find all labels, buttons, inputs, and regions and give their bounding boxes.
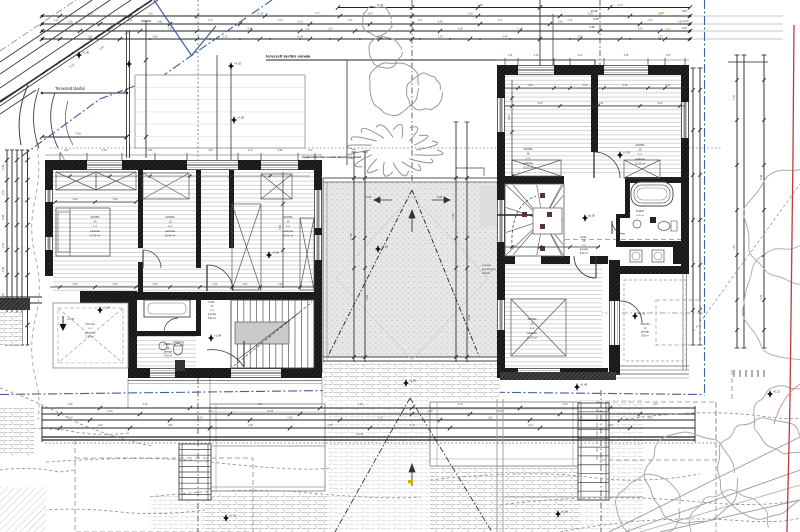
svg-text:TERASZ: TERASZ [640,323,650,326]
svg-text:1,50: 1,50 [557,20,563,24]
svg-text:L-1: L-1 [526,156,530,160]
svg-text:tervezett: tervezett [482,264,491,267]
svg-text:1,93: 1,93 [657,35,663,39]
svg-text:17,50 m²: 17,50 m² [90,233,101,237]
svg-text:9,61 m²: 9,61 m² [580,252,589,255]
svg-text:L-1: L-1 [638,152,642,156]
svg-text:2,10: 2,10 [409,423,415,427]
svg-text:parketta: parketta [523,161,533,165]
svg-text:1,48: 1,48 [67,402,73,406]
svg-text:1,50: 1,50 [666,28,671,31]
svg-text:1,20: 1,20 [527,423,533,427]
svg-text:15,48: 15,48 [267,409,274,413]
svg-text:1,50: 1,50 [1,242,5,248]
svg-text:FÜRDŐ: FÜRDŐ [164,343,173,346]
svg-text:2,10: 2,10 [683,19,689,23]
svg-text:greslap: greslap [164,351,173,354]
svg-text:SZOBA: SZOBA [90,215,99,219]
svg-text:+0,15: +0,15 [773,390,781,394]
svg-text:2,10: 2,10 [617,3,623,7]
svg-text:+4,35: +4,35 [234,62,242,66]
svg-text:16: 16 [527,152,530,156]
svg-text:3,04: 3,04 [508,115,511,120]
svg-text:5,18: 5,18 [534,55,539,57]
svg-text:7,60: 7,60 [732,244,736,250]
svg-text:3,04: 3,04 [562,402,568,406]
svg-text:VSZ-162: VSZ-162 [85,323,95,326]
svg-text:tervezett kerítés vonala: tervezett kerítés vonala [266,54,311,59]
svg-text:4,38: 4,38 [357,402,363,406]
svg-text:+1,48: +1,48 [214,334,222,338]
svg-text:5,48: 5,48 [577,416,583,420]
svg-text:parketta: parketta [283,229,293,233]
svg-text:1,18: 1,18 [660,12,665,15]
svg-text:4,38: 4,38 [153,283,158,286]
svg-text:3,93: 3,93 [538,102,543,105]
svg-text:3,04: 3,04 [418,19,423,22]
svg-text:5,18: 5,18 [102,150,107,152]
svg-text:8,46: 8,46 [467,314,471,320]
svg-text:+0,05: +0,05 [67,317,75,321]
svg-text:gyephézagos: gyephézagos [482,269,497,271]
svg-text:7,04: 7,04 [75,132,81,136]
svg-text:1,50: 1,50 [487,416,493,420]
svg-text:1,93: 1,93 [64,150,69,152]
svg-text:FÜRDŐ: FÜRDŐ [636,210,644,213]
svg-text:greslap: greslap [580,248,589,251]
svg-text:15,48: 15,48 [591,9,598,13]
svg-text:1,20: 1,20 [437,35,443,39]
svg-text:1,20: 1,20 [308,150,313,152]
svg-text:2,10: 2,10 [578,55,583,57]
svg-text:4,38: 4,38 [597,409,603,413]
svg-text:SZOBA: SZOBA [527,317,536,321]
svg-text:4,50 m²: 4,50 m² [164,354,172,357]
svg-text:4,85: 4,85 [279,225,282,230]
svg-text:L-1: L-1 [582,244,586,247]
svg-text:1,48: 1,48 [508,55,513,57]
svg-text:2,10: 2,10 [222,35,228,39]
svg-text:3,04: 3,04 [367,12,373,16]
svg-text:23,96: 23,96 [357,432,364,436]
svg-text:4,85: 4,85 [157,20,163,24]
svg-text:5,48: 5,48 [427,409,433,413]
svg-text:+3,05: +3,05 [623,151,631,155]
svg-text:2,10: 2,10 [377,416,383,420]
svg-text:1,50: 1,50 [87,35,93,39]
svg-text:1,50: 1,50 [583,84,588,87]
svg-text:3,04: 3,04 [243,283,248,286]
svg-text:1,50: 1,50 [113,198,118,201]
svg-text:5,48: 5,48 [1,164,5,170]
svg-text:4,38: 4,38 [623,84,628,87]
svg-text:12: 12 [287,220,290,224]
svg-text:12,35 m²: 12,35 m² [635,161,646,165]
svg-text:1,20: 1,20 [67,20,73,24]
svg-text:burkolat: burkolat [482,272,491,275]
svg-text:1,20: 1,20 [498,19,503,22]
svg-text:17,38: 17,38 [451,213,455,220]
svg-text:3,04: 3,04 [67,416,73,420]
svg-text:17,38: 17,38 [349,233,353,240]
svg-text:5,48: 5,48 [327,423,333,427]
svg-text:2,10: 2,10 [248,150,253,152]
svg-text:5,45: 5,45 [437,195,443,199]
svg-text:1,50: 1,50 [315,12,320,15]
svg-text:13,41 m²: 13,41 m² [283,233,294,237]
svg-text:3,04: 3,04 [637,27,643,31]
svg-text:12,35: 12,35 [597,102,604,105]
svg-text:SZOBA: SZOBA [635,143,644,147]
svg-text:+4,85: +4,85 [237,116,245,120]
svg-text:13: 13 [169,220,172,224]
svg-text:1,20: 1,20 [652,402,658,406]
svg-text:15,48: 15,48 [377,3,384,7]
svg-text:2,63: 2,63 [658,102,663,105]
svg-text:parketta: parketta [90,229,100,233]
svg-text:5,00 m²: 5,00 m² [636,214,644,217]
svg-text:12,35: 12,35 [257,12,264,16]
svg-text:2,10: 2,10 [457,402,463,406]
svg-text:1,93: 1,93 [207,409,213,413]
svg-text:11: 11 [531,322,534,326]
svg-text:parketta: parketta [527,331,537,335]
svg-text:5,62 m²: 5,62 m² [208,317,217,320]
svg-text:9,00 m²: 9,00 m² [641,334,649,337]
svg-text:parketta: parketta [165,229,175,233]
svg-text:2,10: 2,10 [297,20,303,24]
svg-text:1,50: 1,50 [113,283,118,286]
svg-text:+0,45: +0,45 [638,312,646,316]
svg-text:15,48: 15,48 [297,35,304,39]
svg-text:KÖZL.: KÖZL. [208,301,216,304]
svg-text:2,10: 2,10 [666,84,671,87]
svg-text:1,50: 1,50 [327,27,333,31]
svg-text:±0,00: ±0,00 [588,214,595,218]
svg-text:5,48: 5,48 [624,55,629,57]
svg-text:+2,86: +2,86 [272,251,280,255]
svg-text:1,50: 1,50 [666,55,671,57]
svg-text:5,48: 5,48 [1,266,5,272]
svg-text:L-1: L-1 [168,224,172,228]
svg-text:1,50: 1,50 [148,150,153,152]
svg-text:4,38: 4,38 [152,35,158,39]
svg-text:parketta: parketta [635,157,645,161]
svg-text:1,50: 1,50 [1,189,5,195]
svg-text:5,60: 5,60 [365,294,369,300]
svg-text:4,38: 4,38 [477,3,483,7]
svg-text:5,48: 5,48 [247,27,253,31]
svg-text:13,40 m²: 13,40 m² [165,233,176,237]
svg-text:L-1: L-1 [286,224,290,228]
svg-text:L-1: L-1 [530,326,534,330]
svg-text:5,48: 5,48 [73,283,78,286]
svg-text:5,48: 5,48 [502,35,508,39]
svg-text:1,20: 1,20 [197,416,203,420]
svg-text:15: 15 [639,148,642,152]
svg-text:13,50 m²: 13,50 m² [523,165,534,169]
svg-text:1,50: 1,50 [147,12,153,16]
svg-text:5,48: 5,48 [1,214,5,220]
svg-text:1,20: 1,20 [278,283,283,286]
svg-text:greslap: greslap [208,313,217,316]
svg-text:+0,45: +0,45 [82,51,90,55]
svg-text:1,50: 1,50 [278,19,283,22]
svg-text:2,10: 2,10 [517,27,523,31]
svg-text:13,13 m²: 13,13 m² [527,335,538,339]
svg-text:2,10: 2,10 [213,283,218,286]
svg-text:+1,43: +1,43 [229,514,237,518]
svg-text:4,38: 4,38 [457,27,463,31]
svg-text:4,85: 4,85 [167,423,173,427]
svg-text:5,48: 5,48 [759,174,763,180]
svg-text:greslap: greslap [641,331,650,334]
svg-text:1,93: 1,93 [759,294,763,300]
svg-text:7,38: 7,38 [208,150,213,152]
svg-text:5,48: 5,48 [142,402,148,406]
svg-text:SZOBA: SZOBA [283,215,292,219]
svg-text:3,93: 3,93 [73,198,78,201]
svg-text:5,00 m²: 5,00 m² [86,336,95,339]
svg-text:+0,45: +0,45 [561,510,569,514]
svg-text:2,63: 2,63 [648,19,653,22]
svg-text:5,48: 5,48 [568,19,573,22]
svg-text:Tervezett támfal: Tervezett támfal [55,86,85,91]
svg-text:4,38: 4,38 [677,20,683,24]
svg-text:1,50: 1,50 [257,402,263,406]
svg-text:2,10: 2,10 [208,19,213,22]
svg-text:1,20: 1,20 [467,12,473,16]
svg-text:1,48: 1,48 [247,423,253,427]
svg-text:1,93: 1,93 [97,423,103,427]
svg-text:5,48: 5,48 [437,20,443,24]
svg-text:1,18: 1,18 [305,28,310,31]
svg-text:5,45: 5,45 [366,195,372,199]
svg-text:L-1: L-1 [210,309,214,312]
svg-text:+0,05: +0,05 [103,306,111,310]
svg-text:5,48: 5,48 [593,17,599,21]
svg-text:4,38: 4,38 [348,19,353,22]
svg-text:+1,86: +1,86 [381,245,389,249]
svg-text:14: 14 [94,220,97,224]
svg-text:5,48: 5,48 [528,84,533,87]
svg-text:1,50: 1,50 [681,9,687,13]
svg-text:gyeprács: gyeprács [85,331,96,334]
svg-text:2,63: 2,63 [107,409,113,413]
svg-text:+0,48: +0,48 [580,383,588,387]
svg-text:+1,50: +1,50 [409,379,417,383]
svg-text:1,50: 1,50 [497,409,503,413]
svg-text:2,63: 2,63 [577,35,583,39]
svg-text:3,04: 3,04 [607,423,613,427]
svg-text:L-1: L-1 [93,224,97,228]
svg-text:SZOBA: SZOBA [523,147,532,151]
svg-text:1,50: 1,50 [732,94,736,100]
svg-text:6,35: 6,35 [287,416,293,420]
svg-text:L-1: L-1 [88,327,92,330]
svg-text:5,48: 5,48 [278,150,283,152]
svg-text:KÖZL.: KÖZL. [580,236,588,239]
svg-text:4,38: 4,38 [589,25,595,29]
svg-text:SZOBA: SZOBA [165,215,174,219]
svg-text:1,20: 1,20 [681,26,687,30]
svg-text:0,90: 0,90 [54,19,59,22]
